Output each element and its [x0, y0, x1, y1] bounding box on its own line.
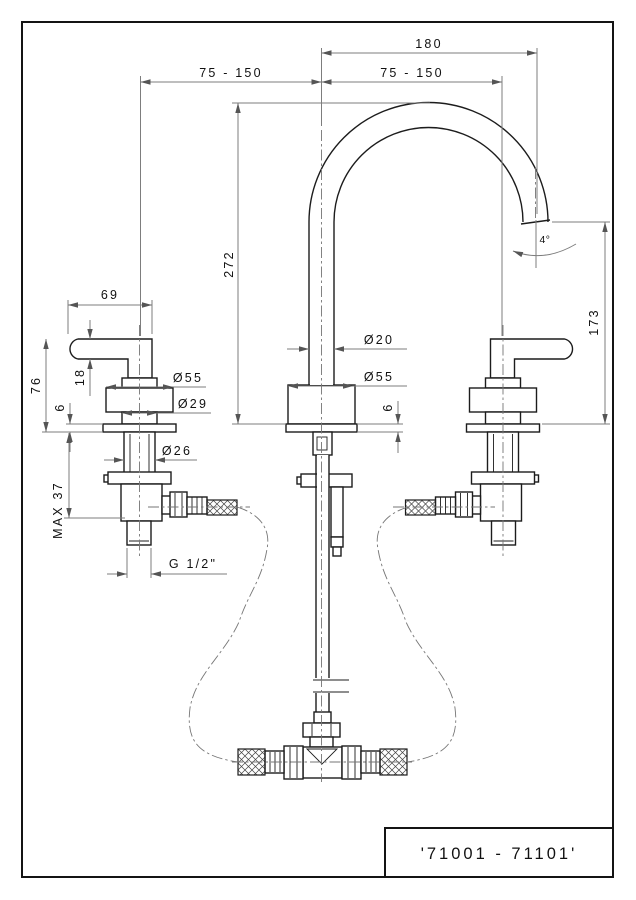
dim-label-escutcheon-dia: Ø55	[173, 371, 203, 385]
dim-label-handle-height: 76	[29, 376, 43, 394]
dim-label-max-deck: MAX 37	[51, 481, 65, 539]
right-valve-unit	[406, 339, 573, 545]
pipe-break-symbol	[313, 680, 349, 692]
dim-label-shank-dia: Ø26	[162, 444, 192, 458]
dim-label-lever-thickness: 18	[73, 368, 87, 386]
dim-label-left-spacing: 75 - 150	[199, 66, 262, 80]
dim-label-base-height-left: 6	[53, 402, 67, 411]
dim-label-spout-base-dia: Ø55	[364, 370, 394, 384]
dim-label-outlet-height: 173	[587, 308, 601, 335]
dim-label-overall-width: 180	[415, 37, 442, 51]
technical-drawing-page: 180 75 - 150 75 - 150 69 76 18 6 Ø55 Ø29…	[0, 0, 636, 900]
dim-label-thread-size: G 1/2"	[169, 557, 217, 571]
hose-curve-left	[189, 507, 268, 762]
faucet-installation-drawing: 180 75 - 150 75 - 150 69 76 18 6 Ø55 Ø29…	[0, 0, 636, 900]
dim-label-spout-tube-dia: Ø20	[364, 333, 394, 347]
title-block: '71001 - 71101'	[385, 828, 613, 877]
dim-label-lever-length: 69	[101, 288, 119, 302]
supply-tee	[238, 712, 407, 779]
hose-curve-right	[377, 507, 456, 762]
dim-label-outlet-angle: 4°	[539, 234, 550, 246]
left-valve-unit	[70, 339, 237, 545]
part-code: '71001 - 71101'	[421, 845, 578, 863]
dim-label-base-height-center: 6	[381, 402, 395, 411]
dim-label-right-spacing: 75 - 150	[380, 66, 443, 80]
dim-label-spout-height: 272	[222, 250, 236, 277]
dim-label-neck-dia: Ø29	[178, 397, 208, 411]
